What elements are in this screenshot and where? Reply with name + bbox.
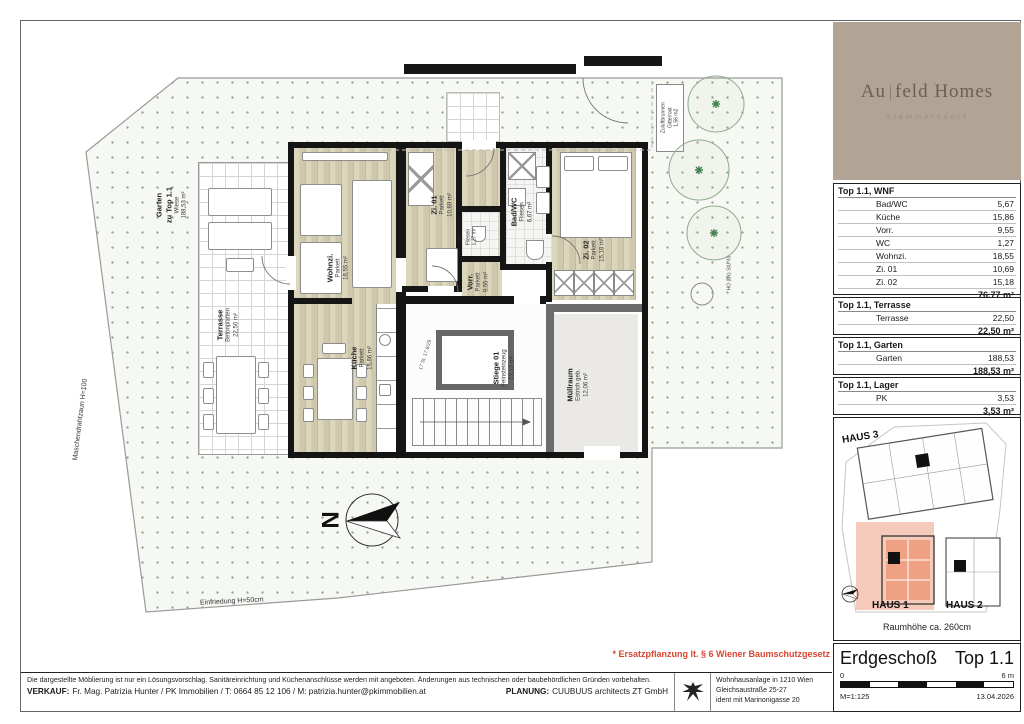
table-row: Zi. 0110,69 (838, 263, 1016, 276)
verkauf-contact: Fr. Mag. Patrizia Hunter / PK Immobilien… (72, 687, 426, 696)
terrace-label: Terrasse Betonplatten 22,50 m² (215, 308, 240, 342)
austrian-eagle-icon (674, 673, 710, 711)
kitchen-counter (376, 304, 396, 452)
room-label-kueche: Küche Parkett 15,86 m² (349, 346, 374, 370)
terrace-chair (258, 414, 269, 430)
terrace-chair (203, 362, 214, 378)
room-label-stiege: Stiege 01 Feinsteinzeug 13,12 m² (491, 349, 516, 386)
chair (356, 386, 367, 400)
stair-treads (412, 398, 542, 446)
footer-disclaimer: Die dargestellte Möblierung ist nur ein … (27, 676, 668, 684)
scale-ratio: M=1:125 (840, 692, 869, 701)
wardrobe (614, 270, 634, 296)
room-label-wohnzimmer: Wohnzi. Parkett 18,55 m² (325, 254, 350, 283)
wardrobe (594, 270, 614, 296)
room-label-muellraum: Müllraum Estrich geb. 12,06 m² (565, 368, 590, 401)
wardrobe (574, 270, 594, 296)
table-row: Terrasse22,50 (838, 312, 1016, 325)
wall-segment (546, 304, 642, 312)
terrace-dining-table (216, 356, 256, 434)
scale-bar (840, 681, 1014, 688)
wall-segment (546, 148, 552, 234)
scale-max: 6 m (1001, 671, 1014, 680)
wall-segment (500, 148, 506, 270)
door-opening (428, 286, 454, 292)
sideboard (302, 152, 388, 161)
room-label-zi01: Zi. 01 Parkett 10,69 m² (429, 193, 454, 217)
footer-text-block: Die dargestellte Möblierung ist nur ein … (21, 673, 674, 711)
scale-zero: 0 (840, 671, 844, 680)
area-table-lager: Top 1.1, Lager PK3,53 3,53 m² (833, 377, 1021, 415)
planung-firm: CUUBUUS architects ZT GmbH (552, 687, 668, 696)
site-key-plan: HAUS 3 HAUS 1 HAUS 2 Raumhöhe ca. 260cm (833, 417, 1021, 641)
terrace-chair (258, 388, 269, 404)
verkauf-label: VERKAUF: (27, 687, 69, 696)
terrace-chair (258, 362, 269, 378)
unit-title: Top 1.1 (955, 648, 1014, 669)
wall-segment (404, 64, 576, 74)
terrace-chair (203, 388, 214, 404)
planung-label: PLANUNG: (506, 687, 549, 696)
wall-segment (500, 264, 552, 270)
chair (303, 386, 314, 400)
title-block: Erdgeschoß Top 1.1 0 6 m M=1:125 13.04.2… (833, 643, 1021, 712)
brand-logo: Au feld Homes Stammersdorf (833, 22, 1021, 180)
chair (303, 408, 314, 422)
terrace-lounge (208, 222, 272, 250)
air-shaft-label: Zuluftbrunnen Gitterrost 1,56 m2 (660, 103, 680, 134)
table-total: 22,50 m² (838, 325, 1016, 336)
entrance-door-opening (462, 140, 496, 150)
wall-segment (294, 298, 352, 304)
north-letter: N (318, 511, 346, 528)
chair (322, 343, 346, 354)
entrance-path (446, 92, 500, 142)
room-label-wc: WC Fliesen 1,27 m² (458, 229, 479, 246)
kitchen-sink (379, 334, 391, 346)
table-row: Garten188,53 (838, 352, 1016, 365)
table-total: 3,53 m² (838, 405, 1016, 416)
table-title: Top 1.1, Lager (838, 379, 1016, 392)
terrace-lounge (208, 188, 272, 216)
wall-segment (546, 312, 554, 452)
sofa (352, 180, 392, 288)
terrace-door-opening (286, 256, 296, 290)
table-row: Zi. 0215,18 (838, 276, 1016, 289)
room-label-badwc: Bad/WC Fliesen 6,67 m² (509, 198, 534, 227)
site-plan-drawing (834, 418, 1020, 618)
table-row: Bad/WC5,67 (838, 198, 1016, 211)
muellraum-door-opening (584, 446, 620, 460)
sofa (300, 184, 342, 236)
table-row: Küche15,86 (838, 211, 1016, 224)
shower (508, 152, 536, 180)
wall-segment (462, 206, 500, 212)
floor-title: Erdgeschoß (840, 648, 937, 669)
area-table-wnf: Top 1.1, WNF Bad/WC5,67 Küche15,86 Vorr.… (833, 183, 1021, 295)
terrace-side-table (226, 258, 254, 272)
project-address: Wohnhausanlage in 1210 Wien Gleichsaustr… (710, 673, 832, 711)
table-title: Top 1.1, Garten (838, 339, 1016, 352)
table-row: Wohnzi.18,55 (838, 250, 1016, 263)
wall-segment (462, 256, 500, 262)
dining-table (317, 358, 353, 420)
sink (536, 166, 550, 188)
table-row: WC1,27 (838, 237, 1016, 250)
desk (426, 248, 458, 282)
brand-name: Au feld Homes (861, 81, 993, 103)
haus2-label: HAUS 2 (946, 600, 983, 611)
footer: Die dargestellte Möblierung ist nur ein … (21, 672, 832, 711)
wall-segment (546, 262, 552, 302)
kitchen-stove (379, 384, 391, 396)
table-total: 188,53 m² (838, 365, 1016, 376)
air-shaft-box: Zuluftbrunnen Gitterrost 1,56 m2 (656, 84, 684, 152)
table-row: Vorr.9,55 (838, 224, 1016, 237)
pillow (598, 156, 628, 171)
room-label-zi02: Zi. 02 Parkett 15,18 m² (581, 238, 606, 262)
toilet (526, 240, 544, 260)
terrace-chair (203, 414, 214, 430)
room-label-vorraum: Vorr. Parkett 9,55 m² (465, 272, 490, 292)
chair (303, 364, 314, 378)
pillow (564, 156, 594, 171)
replacement-planting-note: * Ersatzpflanzung lt. § 6 Wiener Baumsch… (530, 649, 830, 659)
plan-date: 13.04.2026 (976, 692, 1014, 701)
area-table-garten: Top 1.1, Garten Garten188,53 188,53 m² (833, 337, 1021, 375)
chair (356, 408, 367, 422)
garden-label: Garten zu Top 1.1 Wiese 188,53 m² (154, 187, 189, 223)
brand-divider (890, 85, 891, 100)
sink (536, 192, 550, 214)
wardrobe (554, 270, 574, 296)
table-row: PK3,53 (838, 392, 1016, 405)
haus1-label: HAUS 1 (872, 600, 909, 611)
tree-tag-label: HO (Bk) StU 45 (726, 256, 732, 291)
wall-segment (584, 56, 662, 66)
door-opening (514, 296, 540, 304)
room-height-note: Raumhöhe ca. 260cm (834, 622, 1020, 632)
table-title: Top 1.1, Terrasse (838, 299, 1016, 312)
area-table-terrasse: Top 1.1, Terrasse Terrasse22,50 22,50 m² (833, 297, 1021, 335)
table-title: Top 1.1, WNF (838, 185, 1016, 198)
brand-subtitle: Stammersdorf (885, 112, 968, 121)
